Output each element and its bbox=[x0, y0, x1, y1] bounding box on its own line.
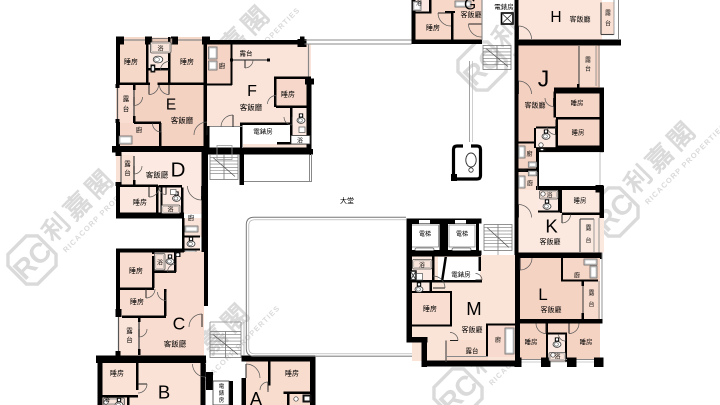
svg-text:露: 露 bbox=[126, 327, 133, 335]
svg-text:電梯: 電梯 bbox=[419, 230, 431, 238]
svg-text:睡房: 睡房 bbox=[129, 266, 143, 275]
svg-text:睡房: 睡房 bbox=[572, 128, 585, 137]
svg-text:睡房: 睡房 bbox=[124, 57, 138, 66]
svg-text:露: 露 bbox=[124, 160, 131, 168]
svg-text:L: L bbox=[538, 285, 547, 304]
svg-text:睡房: 睡房 bbox=[571, 98, 584, 107]
svg-text:睡房: 睡房 bbox=[580, 337, 593, 346]
svg-text:浴: 浴 bbox=[546, 191, 552, 199]
svg-text:睡房: 睡房 bbox=[285, 369, 299, 378]
svg-text:台: 台 bbox=[585, 237, 591, 245]
svg-text:廚: 廚 bbox=[495, 336, 501, 344]
svg-text:電錶房: 電錶房 bbox=[253, 127, 273, 136]
svg-text:電梯: 電梯 bbox=[456, 230, 468, 238]
svg-text:睡房: 睡房 bbox=[426, 23, 440, 32]
svg-text:廚: 廚 bbox=[188, 213, 195, 222]
svg-text:睡房: 睡房 bbox=[423, 304, 437, 313]
svg-text:浴: 浴 bbox=[554, 353, 560, 361]
svg-text:廚: 廚 bbox=[574, 272, 580, 280]
svg-text:客飯廳: 客飯廳 bbox=[164, 339, 187, 349]
svg-text:F: F bbox=[247, 83, 257, 100]
svg-text:H: H bbox=[550, 9, 561, 26]
svg-text:浴: 浴 bbox=[157, 259, 163, 267]
svg-text:D: D bbox=[171, 159, 186, 182]
svg-text:客飯廳: 客飯廳 bbox=[541, 305, 562, 314]
svg-text:B: B bbox=[158, 382, 170, 403]
svg-text:電: 電 bbox=[219, 383, 225, 390]
svg-text:電錶房: 電錶房 bbox=[451, 270, 471, 279]
svg-text:客飯廳: 客飯廳 bbox=[146, 170, 169, 180]
svg-text:睡房: 睡房 bbox=[110, 369, 124, 378]
svg-text:露台: 露台 bbox=[466, 346, 479, 355]
svg-text:J: J bbox=[538, 66, 550, 92]
svg-text:睡房: 睡房 bbox=[130, 297, 144, 306]
svg-text:睡房: 睡房 bbox=[525, 337, 538, 346]
svg-text:睡房: 睡房 bbox=[133, 198, 147, 207]
svg-text:浴: 浴 bbox=[104, 396, 110, 404]
svg-text:睡房: 睡房 bbox=[574, 196, 587, 205]
svg-text:浴: 浴 bbox=[167, 206, 173, 214]
svg-text:台: 台 bbox=[605, 20, 611, 28]
svg-text:露: 露 bbox=[605, 10, 611, 17]
svg-text:廚: 廚 bbox=[219, 61, 226, 70]
svg-text:浴: 浴 bbox=[297, 137, 303, 145]
svg-text:電錶房: 電錶房 bbox=[494, 2, 514, 11]
svg-text:客飯廳: 客飯廳 bbox=[570, 15, 591, 24]
svg-text:廚: 廚 bbox=[527, 180, 533, 188]
svg-text:露: 露 bbox=[585, 225, 591, 232]
svg-text:M: M bbox=[466, 298, 481, 319]
svg-text:E: E bbox=[166, 97, 176, 114]
svg-text:廚: 廚 bbox=[136, 125, 143, 134]
svg-text:大堂: 大堂 bbox=[340, 196, 354, 205]
svg-text:睡房: 睡房 bbox=[180, 57, 194, 66]
svg-text:C: C bbox=[173, 314, 186, 334]
svg-text:浴: 浴 bbox=[157, 45, 163, 53]
svg-text:露: 露 bbox=[585, 57, 591, 64]
svg-text:客飯廳: 客飯廳 bbox=[540, 237, 561, 246]
svg-text:台: 台 bbox=[123, 104, 130, 113]
svg-text:浴: 浴 bbox=[419, 261, 425, 269]
svg-text:露台: 露台 bbox=[240, 49, 253, 58]
svg-text:台: 台 bbox=[126, 335, 133, 344]
svg-text:台: 台 bbox=[124, 168, 131, 177]
svg-text:客飯廳: 客飯廳 bbox=[171, 115, 194, 125]
svg-text:錶: 錶 bbox=[219, 389, 225, 397]
svg-text:台: 台 bbox=[588, 301, 594, 309]
svg-text:露: 露 bbox=[123, 95, 130, 103]
svg-text:客飯廳: 客飯廳 bbox=[462, 325, 483, 334]
svg-text:台: 台 bbox=[585, 65, 591, 73]
svg-text:A: A bbox=[250, 389, 262, 405]
svg-text:浴: 浴 bbox=[416, 0, 422, 7]
svg-text:客飯廳: 客飯廳 bbox=[461, 10, 482, 19]
svg-text:房: 房 bbox=[219, 396, 225, 404]
svg-text:K: K bbox=[545, 216, 558, 237]
svg-text:客飯廳: 客飯廳 bbox=[525, 101, 546, 110]
svg-text:廚: 廚 bbox=[526, 150, 532, 158]
svg-text:睡房: 睡房 bbox=[281, 90, 295, 99]
svg-text:露: 露 bbox=[588, 290, 594, 297]
svg-text:客飯廳: 客飯廳 bbox=[240, 102, 263, 112]
